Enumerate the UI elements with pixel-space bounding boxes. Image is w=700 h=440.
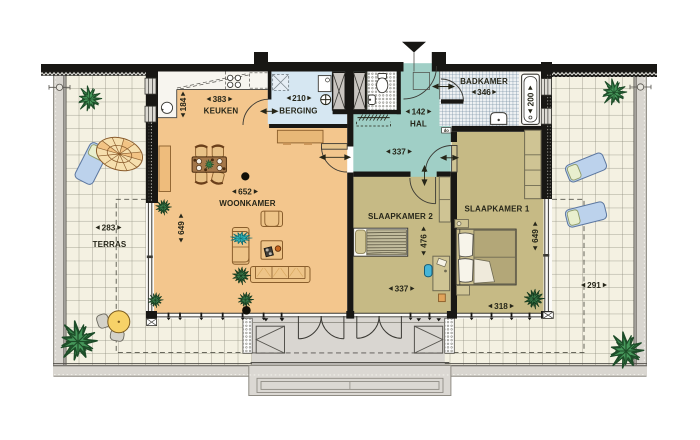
svg-text:142: 142 xyxy=(412,108,426,117)
svg-text:283: 283 xyxy=(102,224,116,233)
svg-text:TERRAS: TERRAS xyxy=(93,240,127,249)
svg-text:HAL: HAL xyxy=(410,119,427,128)
svg-text:318: 318 xyxy=(494,302,508,311)
svg-text:649: 649 xyxy=(531,229,540,243)
svg-text:184: 184 xyxy=(179,97,188,111)
svg-text:SLAAPKAMER 1: SLAAPKAMER 1 xyxy=(465,204,530,213)
svg-text:200: 200 xyxy=(526,92,535,106)
svg-text:BADKAMER: BADKAMER xyxy=(460,77,508,86)
svg-text:383: 383 xyxy=(213,95,227,104)
svg-text:WOONKAMER: WOONKAMER xyxy=(219,199,276,208)
svg-text:337: 337 xyxy=(395,285,409,294)
svg-text:346: 346 xyxy=(477,88,491,97)
svg-text:KEUKEN: KEUKEN xyxy=(204,106,239,115)
svg-text:291: 291 xyxy=(587,281,601,290)
svg-text:337: 337 xyxy=(392,148,406,157)
svg-text:652: 652 xyxy=(238,188,252,197)
svg-text:BERGING: BERGING xyxy=(279,106,317,115)
svg-text:do: do xyxy=(444,128,450,133)
svg-text:210: 210 xyxy=(292,94,306,103)
svg-text:476: 476 xyxy=(420,234,429,248)
svg-text:649: 649 xyxy=(177,221,186,235)
svg-text:SLAAPKAMER 2: SLAAPKAMER 2 xyxy=(368,212,433,221)
